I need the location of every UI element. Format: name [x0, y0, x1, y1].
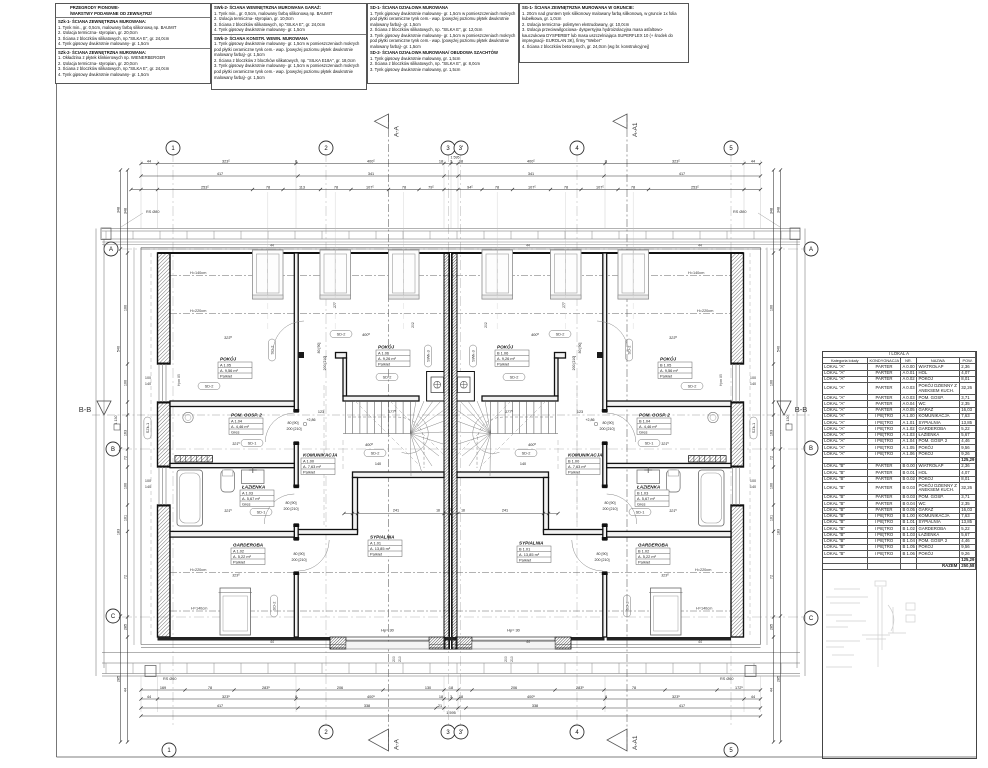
svg-text:POKÓJ: POKÓJ: [378, 344, 395, 350]
svg-text:100: 100: [750, 376, 756, 380]
svg-text:18: 18: [439, 159, 443, 163]
svg-text:80 [90]: 80 [90]: [605, 501, 616, 505]
svg-text:285: 285: [769, 624, 773, 630]
svg-text:A 1.05: A 1.05: [220, 362, 231, 367]
svg-text:80 [90]: 80 [90]: [603, 421, 614, 425]
svg-text:3: 3: [450, 508, 452, 512]
svg-text:44: 44: [147, 159, 151, 163]
svg-text:417: 417: [679, 704, 685, 708]
svg-text:200 [210]: 200 [210]: [323, 356, 327, 371]
svg-text:348: 348: [769, 208, 773, 214]
svg-text:323⁵: 323⁵: [672, 159, 680, 163]
svg-text:72: 72: [769, 456, 773, 460]
svg-text:H=220cm: H=220cm: [697, 309, 713, 313]
svg-text:44: 44: [698, 244, 702, 248]
svg-text:100: 100: [123, 305, 127, 311]
svg-text:177⁵: 177⁵: [388, 410, 396, 414]
svg-text:RS Ø80: RS Ø80: [733, 210, 747, 214]
svg-text:100: 100: [145, 376, 151, 380]
svg-text:241: 241: [393, 509, 399, 513]
svg-text:94⁵: 94⁵: [467, 185, 473, 189]
svg-text:140: 140: [145, 485, 151, 489]
svg-text:A-A1: A-A1: [632, 735, 639, 750]
svg-text:417: 417: [217, 172, 223, 176]
svg-text:A. 4,46 m²: A. 4,46 m²: [231, 424, 250, 429]
svg-text:B 1.01: B 1.01: [519, 546, 530, 551]
svg-text:200 [210]: 200 [210]: [603, 507, 618, 511]
svg-text:44: 44: [270, 640, 274, 644]
svg-text:72: 72: [123, 575, 127, 579]
svg-text:H=220cm: H=220cm: [695, 568, 711, 572]
svg-text:341: 341: [368, 172, 374, 176]
svg-text:323⁵: 323⁵: [669, 336, 677, 340]
svg-text:18: 18: [459, 695, 463, 699]
svg-text:200 [210]: 200 [210]: [595, 558, 610, 562]
svg-text:172⁵: 172⁵: [735, 686, 743, 690]
svg-text:72: 72: [123, 456, 127, 460]
svg-text:A 1.03: A 1.03: [242, 490, 253, 495]
svg-text:SWk-3: SWk-3: [471, 350, 476, 362]
svg-text:H=220cm: H=220cm: [190, 309, 206, 313]
svg-text:44: 44: [147, 695, 151, 699]
svg-text:Parkiet: Parkiet: [568, 469, 581, 474]
svg-text:SD-1: SD-1: [636, 510, 645, 515]
svg-text:SD-2: SD-2: [272, 602, 277, 611]
svg-text:SD-2: SD-2: [383, 375, 392, 380]
svg-text:400⁵: 400⁵: [365, 443, 373, 447]
svg-text:206: 206: [511, 686, 517, 690]
svg-text:A 1.00: A 1.00: [303, 458, 315, 463]
svg-text:183: 183: [116, 529, 120, 535]
svg-text:POM. GOSP. 2: POM. GOSP. 2: [639, 413, 670, 418]
svg-text:C: C: [809, 616, 814, 622]
svg-text:18: 18: [439, 695, 443, 699]
svg-text:SWk-3: SWk-3: [426, 350, 431, 362]
svg-text:78: 78: [495, 185, 499, 189]
svg-text:POKÓJ: POKÓJ: [660, 356, 677, 362]
svg-text:3': 3': [459, 730, 463, 736]
svg-text:SD-2: SD-2: [688, 384, 697, 389]
svg-text:400⁵: 400⁵: [367, 695, 375, 699]
svg-text:78: 78: [266, 185, 270, 189]
svg-text:79⁵: 79⁵: [428, 185, 434, 189]
svg-text:72: 72: [769, 575, 773, 579]
svg-text:78: 78: [564, 185, 568, 189]
svg-text:140: 140: [520, 462, 526, 466]
svg-text:80 [90]: 80 [90]: [317, 343, 321, 354]
svg-text:202: 202: [484, 322, 488, 328]
svg-text:A: A: [809, 247, 813, 253]
svg-text:3': 3': [459, 146, 463, 152]
svg-text:1 130: 1 130: [786, 416, 790, 425]
svg-text:283⁵: 283⁵: [576, 686, 584, 690]
svg-text:200 [210]: 200 [210]: [284, 507, 299, 511]
svg-text:GARDEROBA: GARDEROBA: [233, 543, 263, 548]
svg-text:323⁵: 323⁵: [224, 336, 232, 340]
svg-text:210: 210: [398, 656, 402, 662]
svg-text:A-A: A-A: [394, 126, 401, 138]
svg-text:B 1.05: B 1.05: [660, 362, 671, 367]
svg-text:100: 100: [750, 479, 756, 483]
svg-text:H=140cm: H=140cm: [688, 271, 704, 275]
svg-text:338: 338: [532, 704, 538, 708]
svg-text:8: 8: [295, 159, 297, 163]
svg-text:A-A1: A-A1: [632, 122, 639, 137]
svg-text:SD-2: SD-2: [625, 602, 630, 611]
svg-text:SD-2: SD-2: [205, 384, 214, 389]
svg-text:RS Ø60: RS Ø60: [720, 677, 734, 681]
svg-text:107⁵: 107⁵: [596, 185, 604, 189]
svg-text:123: 123: [577, 410, 583, 414]
svg-text:200 [210]: 200 [210]: [600, 427, 615, 431]
svg-text:Gres: Gres: [242, 501, 250, 506]
svg-text:GARDEROBA: GARDEROBA: [638, 543, 668, 548]
svg-text:A. 13,85 m²: A. 13,85 m²: [519, 552, 540, 557]
svg-text:123: 123: [318, 410, 324, 414]
svg-text:44: 44: [769, 688, 773, 692]
svg-text:78: 78: [208, 686, 212, 690]
svg-text:POKÓJ: POKÓJ: [497, 344, 514, 350]
svg-text:323⁵: 323⁵: [232, 574, 240, 578]
svg-text:323⁵: 323⁵: [222, 695, 230, 699]
svg-text:A. 5,22 m²: A. 5,22 m²: [638, 554, 657, 559]
svg-text:100: 100: [145, 479, 151, 483]
svg-text:1 595: 1 595: [446, 711, 456, 715]
svg-text:321⁵: 321⁵: [224, 509, 232, 513]
svg-text:241: 241: [502, 509, 508, 513]
svg-text:SD-2: SD-2: [371, 451, 380, 456]
svg-text:POKÓJ: POKÓJ: [220, 356, 237, 362]
svg-text:Hp= 30: Hp= 30: [507, 628, 520, 633]
svg-text:SD-2: SD-2: [270, 346, 275, 355]
svg-text:183: 183: [776, 529, 780, 535]
svg-text:SD-2: SD-2: [627, 346, 632, 355]
svg-text:44: 44: [751, 159, 755, 163]
svg-text:SD-2: SD-2: [510, 375, 519, 380]
svg-text:321⁵: 321⁵: [232, 442, 240, 446]
svg-text:8: 8: [605, 695, 607, 699]
svg-text:323⁵: 323⁵: [661, 574, 669, 578]
svg-text:107⁵: 107⁵: [528, 185, 536, 189]
svg-text:80 [90]: 80 [90]: [286, 501, 297, 505]
svg-text:78: 78: [631, 185, 635, 189]
svg-text:Gres: Gres: [637, 501, 645, 506]
svg-text:B-B: B-B: [795, 405, 808, 414]
svg-text:A. 4,46 m²: A. 4,46 m²: [639, 424, 658, 429]
svg-text:348: 348: [123, 208, 127, 214]
svg-text:100: 100: [769, 380, 773, 386]
svg-text:Gres: Gres: [231, 429, 239, 434]
svg-text:Hp= 30: Hp= 30: [381, 628, 394, 633]
svg-text:H=220cm: H=220cm: [190, 568, 206, 572]
svg-text:200 [210]: 200 [210]: [292, 558, 307, 562]
svg-text:SD-2: SD-2: [522, 451, 531, 456]
svg-text:21: 21: [438, 704, 442, 708]
svg-text:B 1.00: B 1.00: [568, 458, 580, 463]
svg-text:140: 140: [145, 382, 151, 386]
svg-text:130: 130: [425, 686, 431, 690]
svg-text:A. 7,63 m²: A. 7,63 m²: [568, 464, 587, 469]
svg-text:200 [210]: 200 [210]: [572, 356, 576, 371]
svg-text:44: 44: [526, 640, 530, 644]
svg-text:400⁵: 400⁵: [527, 695, 535, 699]
svg-text:400⁵: 400⁵: [528, 443, 536, 447]
svg-text:1 130: 1 130: [114, 416, 118, 425]
svg-text:Parkiet: Parkiet: [220, 373, 233, 378]
svg-text:200: 200: [392, 656, 396, 662]
svg-text:B 1.06: B 1.06: [497, 350, 508, 355]
svg-text:400⁵: 400⁵: [362, 333, 370, 337]
svg-text:417: 417: [217, 704, 223, 708]
svg-text:140: 140: [750, 382, 756, 386]
svg-text:200: 200: [504, 656, 508, 662]
svg-text:Hpm 85: Hpm 85: [177, 374, 181, 386]
svg-text:A. 9,26 m²: A. 9,26 m²: [497, 356, 516, 361]
svg-text:Parkiet: Parkiet: [370, 551, 383, 556]
svg-text:78: 78: [334, 185, 338, 189]
svg-text:B: B: [809, 446, 813, 452]
svg-text:78: 78: [632, 686, 636, 690]
svg-text:44: 44: [270, 244, 274, 248]
svg-text:Parkiet: Parkiet: [303, 469, 316, 474]
svg-text:Parkiet: Parkiet: [378, 361, 391, 366]
svg-text:SD-1: SD-1: [248, 441, 257, 446]
svg-text:Gres: Gres: [639, 429, 647, 434]
svg-text:100: 100: [123, 483, 127, 489]
svg-text:80 [90]: 80 [90]: [578, 343, 582, 354]
svg-text:321⁵: 321⁵: [661, 442, 669, 446]
svg-text:285: 285: [123, 624, 127, 630]
svg-text:A. 5,22 m²: A. 5,22 m²: [233, 554, 252, 559]
svg-text:323⁵: 323⁵: [672, 695, 680, 699]
svg-text:540: 540: [776, 346, 780, 352]
svg-text:338: 338: [364, 704, 370, 708]
svg-text:417: 417: [679, 172, 685, 176]
svg-text:B: B: [111, 447, 115, 453]
svg-text:H=140cm: H=140cm: [190, 271, 206, 275]
svg-text:163: 163: [123, 430, 127, 436]
svg-text:ŁAZIENKA: ŁAZIENKA: [241, 485, 265, 490]
svg-text:323⁵: 323⁵: [222, 159, 230, 163]
svg-text:A 1.06: A 1.06: [378, 350, 389, 355]
svg-text:253⁵: 253⁵: [691, 185, 699, 189]
svg-text:A. 5,67 m²: A. 5,67 m²: [242, 496, 261, 501]
svg-text:18: 18: [459, 159, 463, 163]
svg-text:C: C: [111, 614, 116, 620]
svg-text:KOMUNIKACJA: KOMUNIKACJA: [568, 453, 602, 458]
svg-text:277: 277: [333, 302, 337, 308]
svg-text:321⁵: 321⁵: [669, 509, 677, 513]
svg-text:400⁵: 400⁵: [367, 159, 375, 163]
svg-text:B-B: B-B: [79, 405, 92, 414]
svg-text:80 [90]: 80 [90]: [294, 552, 305, 556]
svg-text:Hpm 85: Hpm 85: [719, 374, 723, 386]
svg-text:177⁵: 177⁵: [505, 410, 513, 414]
svg-text:400⁵: 400⁵: [527, 159, 535, 163]
svg-text:100: 100: [769, 305, 773, 311]
svg-text:+2,86: +2,86: [306, 418, 315, 422]
svg-text:540: 540: [116, 346, 120, 352]
svg-text:341: 341: [528, 172, 534, 176]
svg-text:277: 277: [562, 302, 566, 308]
svg-text:206: 206: [337, 686, 343, 690]
svg-text:140: 140: [750, 485, 756, 489]
svg-text:80 [90]: 80 [90]: [288, 421, 299, 425]
svg-text:169: 169: [160, 686, 166, 690]
svg-text:SD-1: SD-1: [257, 510, 266, 515]
svg-text:18: 18: [449, 686, 453, 690]
svg-text:163: 163: [769, 430, 773, 436]
svg-text:A-A: A-A: [394, 739, 401, 751]
svg-text:Parkiet: Parkiet: [519, 557, 532, 562]
svg-text:44: 44: [526, 244, 530, 248]
svg-text:SYPIALNIA: SYPIALNIA: [370, 535, 395, 540]
svg-text:44: 44: [751, 695, 755, 699]
svg-text:A 1.02: A 1.02: [233, 548, 244, 553]
svg-text:Parkiet: Parkiet: [497, 361, 510, 366]
svg-text:SZk-1: SZk-1: [751, 423, 756, 433]
svg-text:283⁵: 283⁵: [262, 686, 270, 690]
svg-text:18: 18: [461, 509, 465, 513]
svg-text:A 1.04: A 1.04: [231, 418, 243, 423]
svg-text:8: 8: [295, 695, 297, 699]
svg-text:H=140cm: H=140cm: [191, 607, 207, 611]
svg-text:44: 44: [698, 640, 702, 644]
svg-text:SD-2: SD-2: [337, 332, 346, 337]
svg-text:18: 18: [436, 509, 440, 513]
svg-text:Parkiet: Parkiet: [233, 559, 246, 564]
svg-text:A. 13,85 m²: A. 13,85 m²: [370, 546, 391, 551]
svg-text:B 1.02: B 1.02: [638, 548, 649, 553]
svg-text:285: 285: [776, 676, 780, 682]
svg-text:3: 3: [450, 159, 452, 163]
svg-text:A. 9,56 m²: A. 9,56 m²: [220, 368, 239, 373]
svg-text:253⁵: 253⁵: [201, 185, 209, 189]
svg-text:285: 285: [116, 676, 120, 682]
svg-text:140: 140: [375, 462, 381, 466]
svg-text:3: 3: [450, 695, 452, 699]
svg-text:80 [90]: 80 [90]: [597, 552, 608, 556]
svg-text:Parkiet: Parkiet: [638, 559, 651, 564]
svg-text:SD-2: SD-2: [556, 332, 565, 337]
svg-text:200 [210]: 200 [210]: [287, 427, 302, 431]
svg-text:ŁAZIENKA: ŁAZIENKA: [636, 485, 660, 490]
svg-text:A: A: [109, 247, 113, 253]
svg-text:78: 78: [402, 185, 406, 189]
svg-text:SZk-1: SZk-1: [145, 423, 150, 433]
svg-text:A. 5,67 m²: A. 5,67 m²: [637, 496, 656, 501]
svg-text:SD-1: SD-1: [645, 441, 654, 446]
svg-text:202: 202: [411, 322, 415, 328]
svg-text:113: 113: [299, 185, 305, 189]
svg-text:POM. GOSP. 2: POM. GOSP. 2: [231, 413, 262, 418]
svg-text:100: 100: [769, 483, 773, 489]
svg-text:348: 348: [776, 207, 780, 213]
svg-text:H=140cm: H=140cm: [696, 607, 712, 611]
svg-text:107⁵: 107⁵: [366, 185, 374, 189]
svg-text:348: 348: [116, 207, 120, 213]
svg-text:RS Ø60: RS Ø60: [163, 677, 177, 681]
svg-text:8: 8: [605, 159, 607, 163]
svg-text:A. 9,26 m²: A. 9,26 m²: [378, 356, 397, 361]
svg-text:A. 7,63 m²: A. 7,63 m²: [303, 464, 322, 469]
svg-text:SYPIALNIA: SYPIALNIA: [519, 541, 544, 546]
svg-text:400⁵: 400⁵: [531, 333, 539, 337]
svg-text:A 1.01: A 1.01: [370, 540, 381, 545]
svg-text:KOMUNIKACJA: KOMUNIKACJA: [303, 453, 337, 458]
svg-text:210: 210: [510, 656, 514, 662]
svg-text:A. 9,56 m²: A. 9,56 m²: [660, 368, 679, 373]
svg-text:Parkiet: Parkiet: [660, 373, 673, 378]
svg-text:B 1.04: B 1.04: [639, 418, 651, 423]
svg-text:B 1.03: B 1.03: [637, 490, 648, 495]
svg-text:101: 101: [769, 515, 773, 521]
svg-text:44: 44: [123, 688, 127, 692]
svg-text:101: 101: [123, 515, 127, 521]
svg-text:+2,86: +2,86: [585, 418, 594, 422]
svg-text:100: 100: [123, 380, 127, 386]
